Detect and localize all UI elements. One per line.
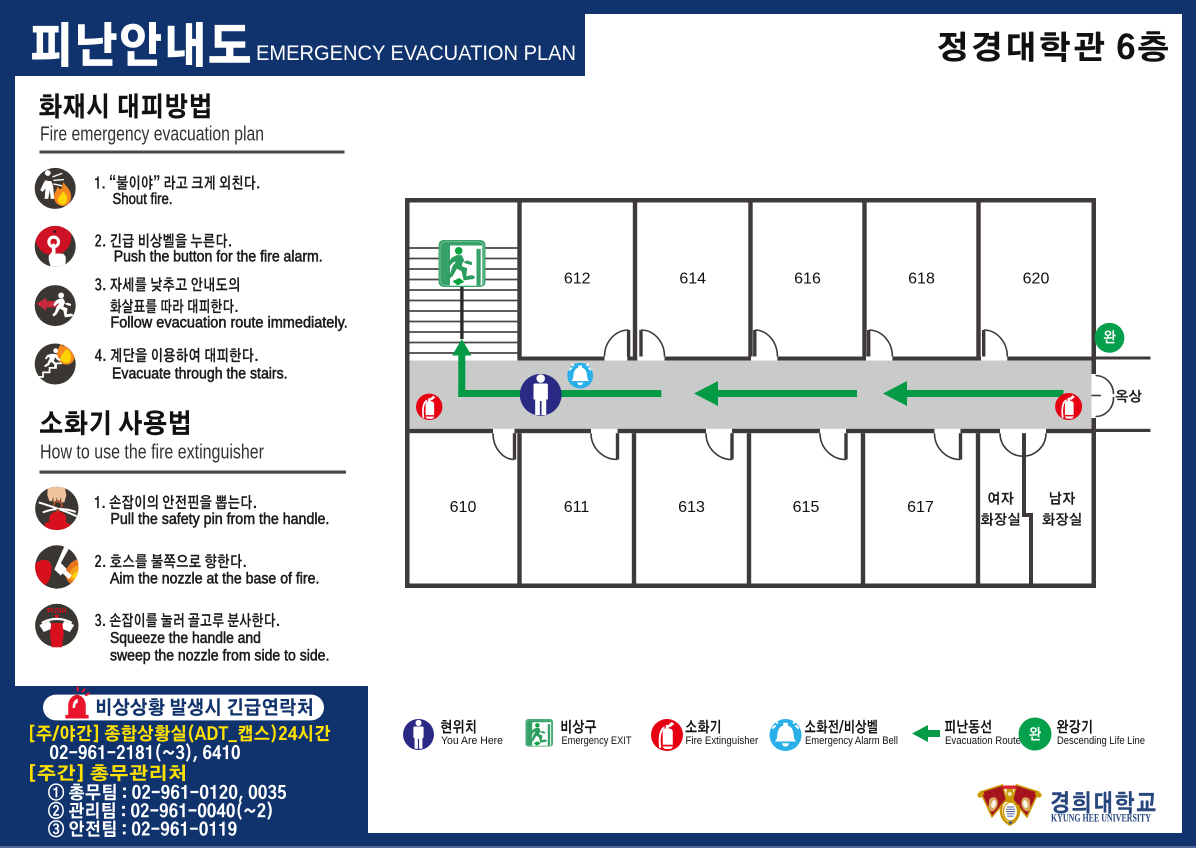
svg-text:618: 618 (908, 271, 935, 288)
svg-text:How to use the fire extinguish: How to use the fire extinguisher (40, 442, 264, 464)
svg-text:Squeeze the handle and: Squeeze the handle and (110, 630, 261, 647)
svg-text:You Are Here: You Are Here (441, 735, 503, 747)
svg-text:615: 615 (793, 499, 820, 516)
svg-text:620: 620 (1023, 271, 1050, 288)
svg-text:KYUNG HEE UNIVERSITY: KYUNG HEE UNIVERSITY (1051, 811, 1151, 825)
svg-text:613: 613 (678, 499, 705, 516)
svg-text:Evacuate through the stairs.: Evacuate through the stairs. (112, 366, 288, 383)
svg-text:EMERGENCY EVACUATION PLAN: EMERGENCY EVACUATION PLAN (256, 41, 576, 65)
svg-text:Fire emergency evacuation plan: Fire emergency evacuation plan (40, 124, 264, 146)
svg-text:616: 616 (794, 271, 821, 288)
svg-text:612: 612 (564, 271, 591, 288)
svg-text:617: 617 (907, 499, 934, 516)
svg-text:Emergency EXIT: Emergency EXIT (562, 735, 632, 747)
svg-text:Emergency Alarm Bell: Emergency Alarm Bell (805, 735, 898, 747)
svg-text:Aim the nozzle at the base of: Aim the nozzle at the base of fire. (110, 570, 319, 587)
svg-text:Evacuation Route: Evacuation Route (945, 735, 1021, 747)
svg-text:Shout fire.: Shout fire. (113, 191, 173, 208)
svg-text:614: 614 (679, 271, 706, 288)
svg-text:sweep the nozzle from side to: sweep the nozzle from side to side. (110, 647, 329, 664)
svg-text:610: 610 (450, 499, 477, 516)
svg-text:Fire Extinguisher: Fire Extinguisher (686, 735, 759, 747)
svg-text:Descending Life Line: Descending Life Line (1057, 735, 1145, 747)
svg-text:611: 611 (564, 499, 590, 516)
svg-text:Follow evacuation route immedi: Follow evacuation route immediately. (110, 315, 347, 332)
svg-text:Pull the safety pin from the h: Pull the safety pin from the handle. (110, 511, 329, 528)
svg-text:PUSH: PUSH (47, 608, 66, 615)
svg-text:Push the button for the fire a: Push the button for the fire alarm. (114, 248, 323, 265)
